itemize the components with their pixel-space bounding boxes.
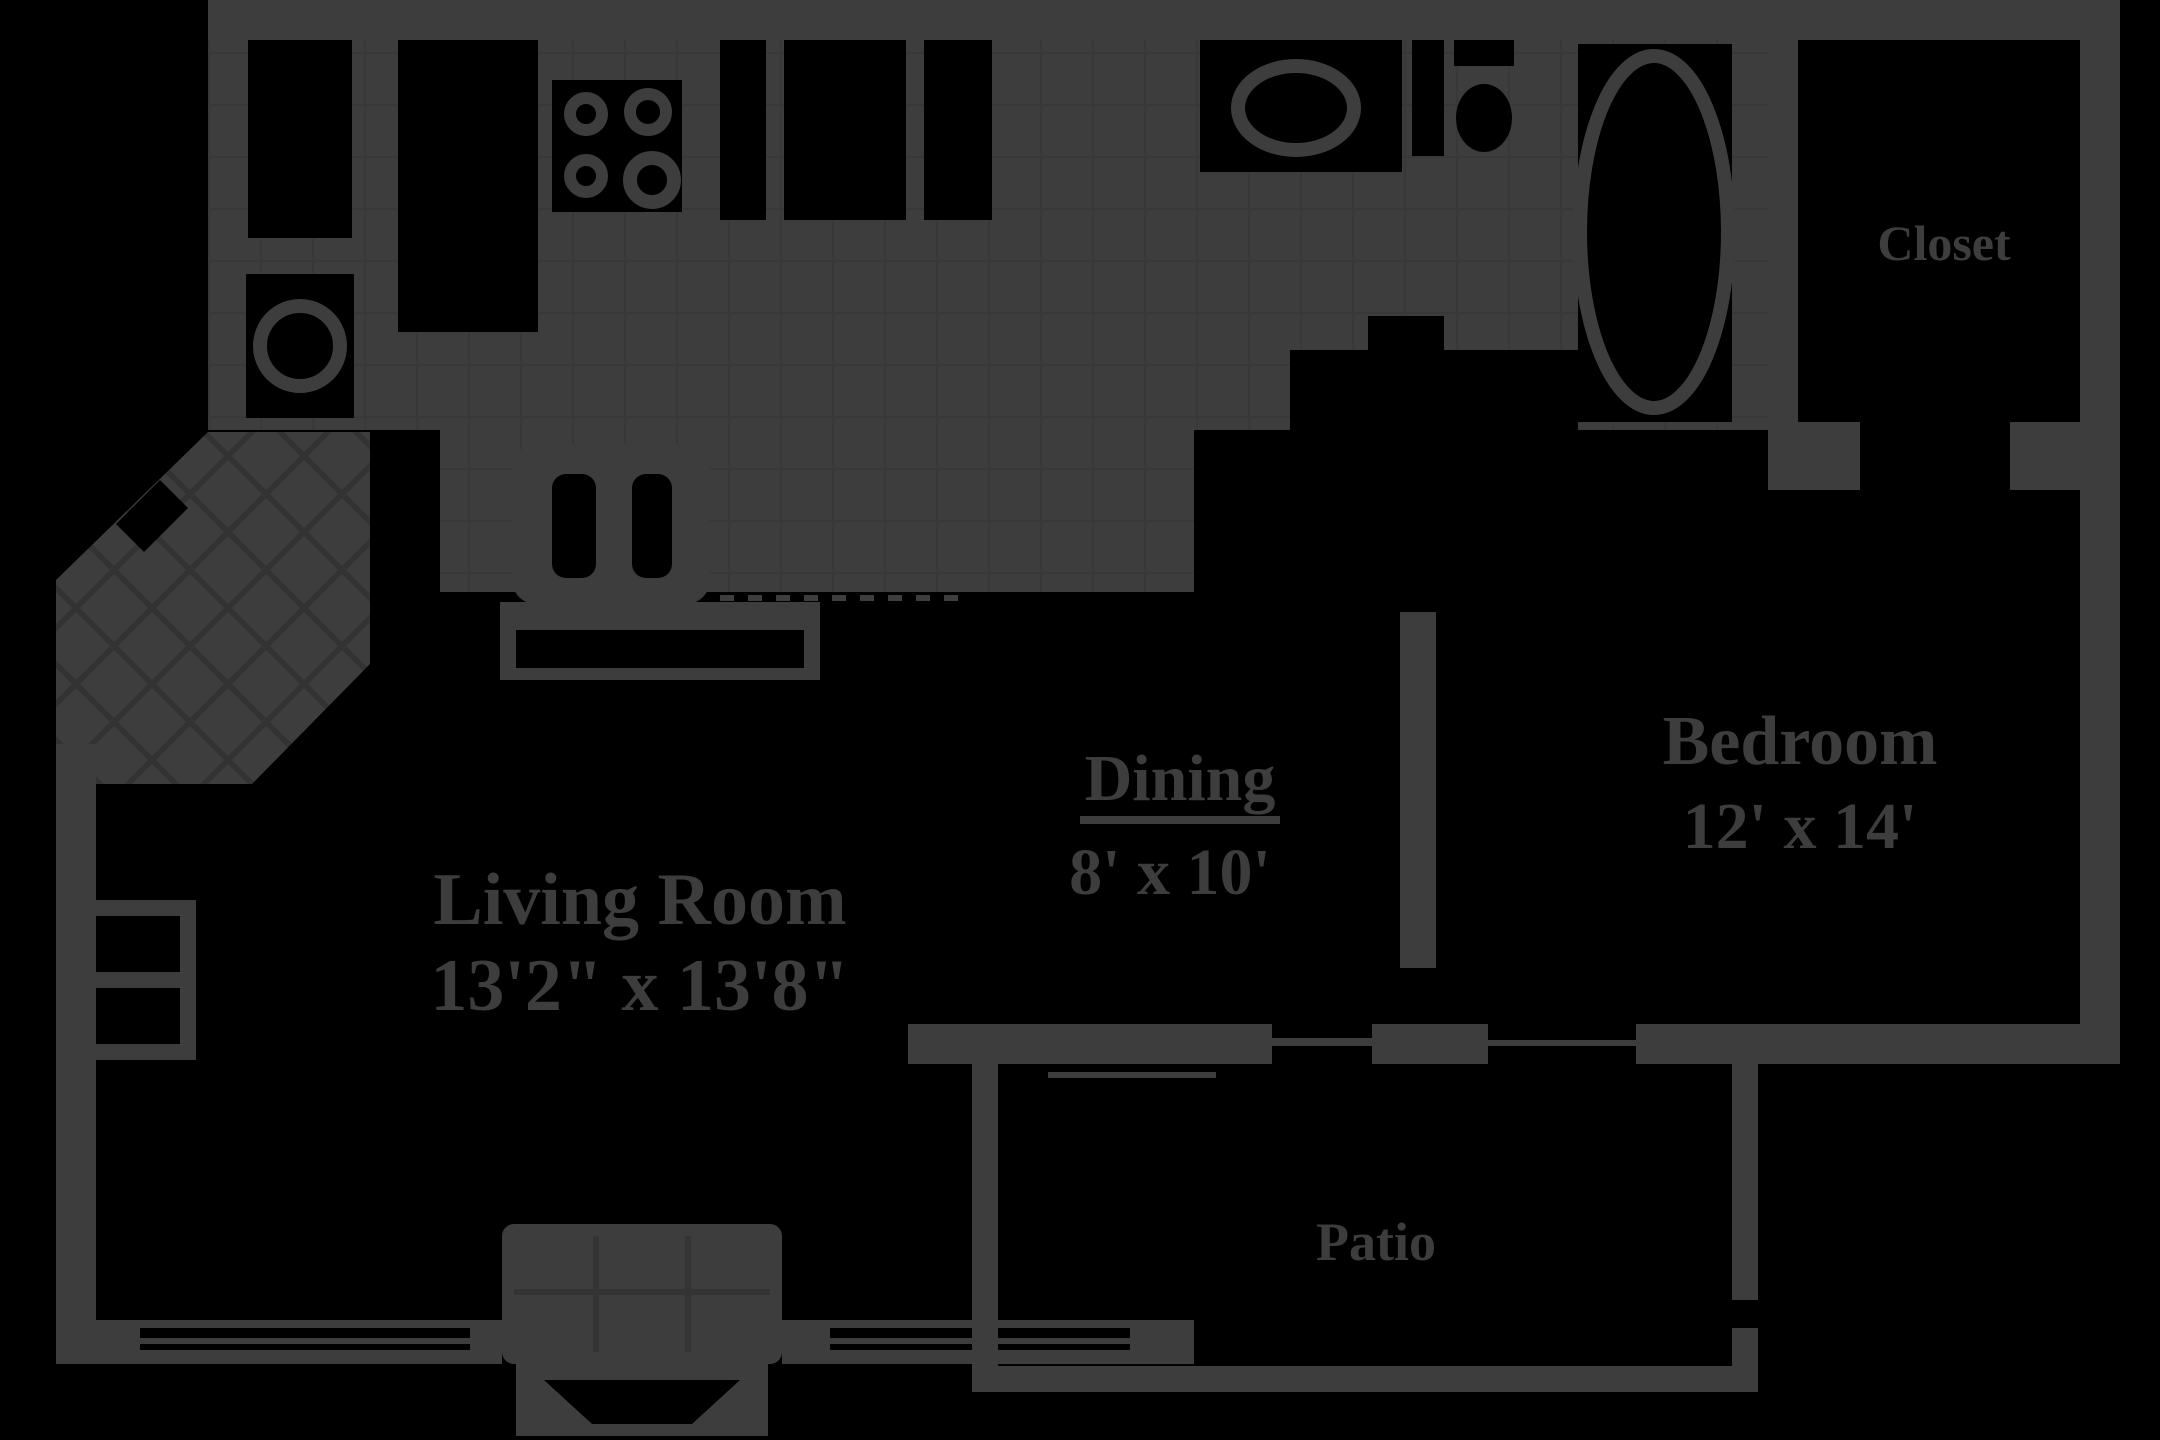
breakfast-bar-counter xyxy=(500,602,820,680)
closet-label: Closet xyxy=(1877,215,2011,271)
walls-structure xyxy=(56,0,2120,1364)
bedroom-window xyxy=(1488,1024,1636,1064)
closet-door-opening xyxy=(1860,422,2010,490)
closet-left-wall xyxy=(1768,40,1798,422)
counter-opening-2 xyxy=(784,40,906,220)
utility-door-panel xyxy=(248,40,352,238)
bedroom-label: Bedroom xyxy=(1663,703,1938,780)
right-wall xyxy=(2080,40,2120,1064)
dining-dims: 8' x 10' xyxy=(1069,836,1271,909)
pantry-panel xyxy=(398,40,538,332)
living-room-label: Living Room xyxy=(433,859,846,941)
dining-bedroom-divider-wall xyxy=(1400,612,1436,968)
patio-label: Patio xyxy=(1316,1212,1436,1272)
dining-label: Dining xyxy=(1085,742,1276,815)
kitchen-double-sink-icon xyxy=(512,444,710,604)
bathroom-door-opening xyxy=(1368,316,1444,350)
dining-window-sill xyxy=(1048,1072,1216,1078)
floor-plan-diagram: Living Room 13'2" x 13'8" Dining 8' x 10… xyxy=(0,0,2160,1440)
entry-foyer-tile xyxy=(56,432,370,784)
counter-opening-1 xyxy=(720,40,766,220)
patio-sliding-door xyxy=(1272,1024,1372,1064)
fireplace xyxy=(502,1224,782,1436)
left-wall-window xyxy=(80,900,196,1060)
counter-opening-3 xyxy=(924,40,992,220)
toilet-bowl xyxy=(1456,84,1512,152)
top-wall xyxy=(208,0,2120,40)
toilet-tank xyxy=(1454,40,1514,66)
living-room-dims: 13'2" x 13'8" xyxy=(430,945,849,1027)
bedroom-top-corner xyxy=(1290,350,1578,430)
floor-plan-page: Living Room 13'2" x 13'8" Dining 8' x 10… xyxy=(0,0,2160,1440)
toilet-side-cutout xyxy=(1412,40,1444,156)
dining-underline xyxy=(1080,816,1280,824)
bedroom-dims: 12' x 14' xyxy=(1683,790,1918,863)
